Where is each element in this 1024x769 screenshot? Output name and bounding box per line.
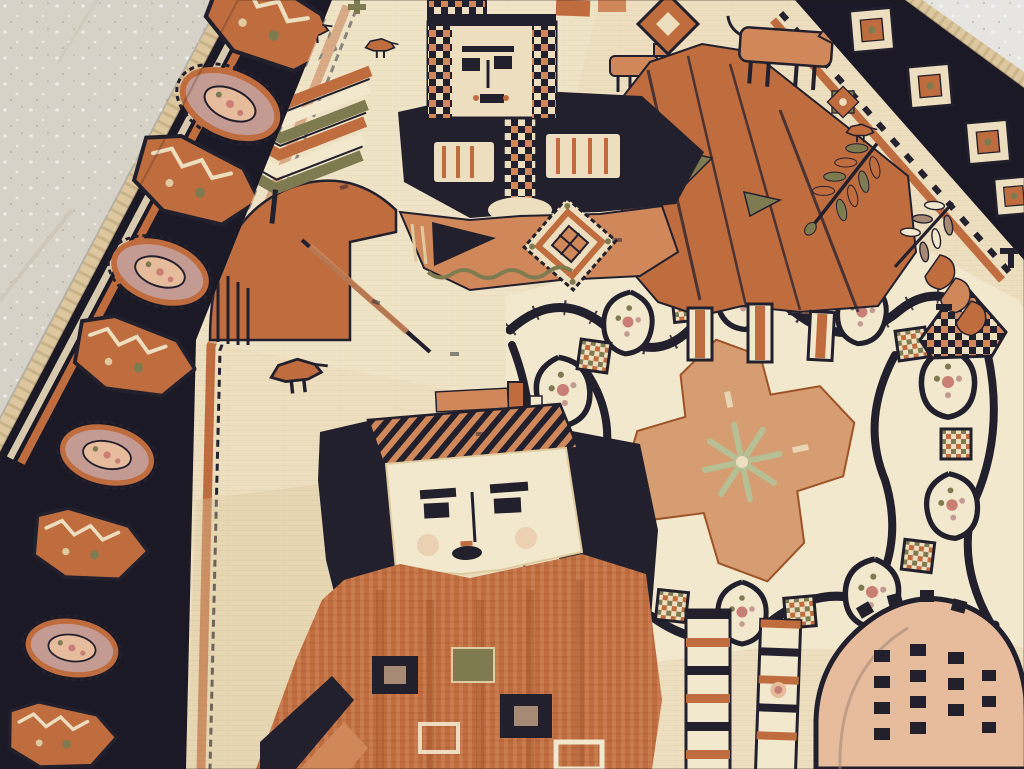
- star-motif: [827, 86, 858, 117]
- rug-photo: [0, 0, 1024, 769]
- canopy-legs: [688, 304, 835, 362]
- face: [386, 448, 582, 574]
- rider-head: [428, 14, 556, 118]
- photo-stage: [0, 0, 1024, 769]
